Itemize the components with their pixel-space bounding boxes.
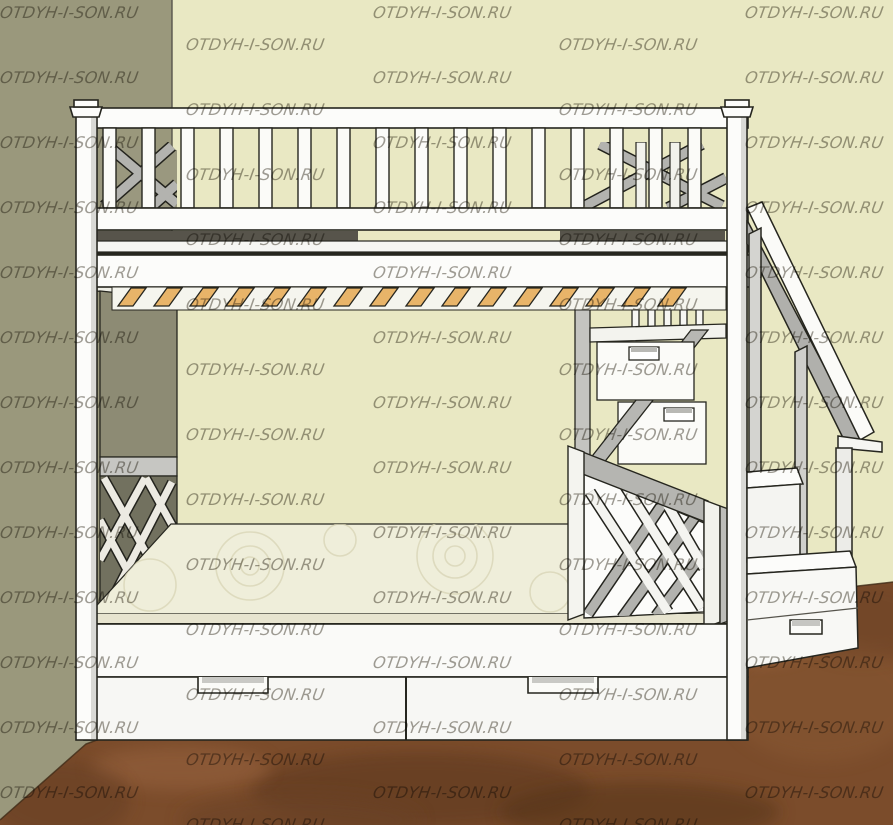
top-bunk	[84, 108, 750, 310]
right-post-cap	[721, 107, 753, 117]
left-post-cap-top	[74, 100, 98, 107]
drawer-band	[84, 677, 748, 740]
left-post-cap	[70, 107, 102, 117]
footboard-far-post	[568, 446, 584, 620]
guard-top-rail	[88, 108, 748, 128]
footboard-near-post	[704, 500, 720, 628]
bunk-side-board	[84, 255, 750, 287]
product-render: OTDYH-I-SON.RUOTDYH-I-SON.RUOTDYH-I-SON.…	[0, 0, 893, 825]
guard-bottom-rail	[88, 208, 748, 230]
drawer-right-handle	[528, 677, 598, 693]
bunk-bed-illustration	[0, 0, 893, 825]
base-rail	[84, 624, 748, 677]
stair-drawer-handle	[790, 620, 822, 634]
bunk-thin-board	[86, 241, 748, 252]
mattress-front-band	[89, 614, 748, 624]
headboard-panel	[100, 291, 177, 457]
headboard-rail	[100, 457, 177, 476]
drawer-left-handle	[198, 677, 268, 693]
bed-base	[84, 624, 748, 740]
top-mattress-edge-right	[560, 231, 725, 241]
top-mattress-edge-left	[92, 231, 358, 241]
step-1-riser	[747, 484, 800, 562]
right-post-cap-top	[725, 100, 749, 107]
rail-baluster-1	[749, 228, 761, 478]
